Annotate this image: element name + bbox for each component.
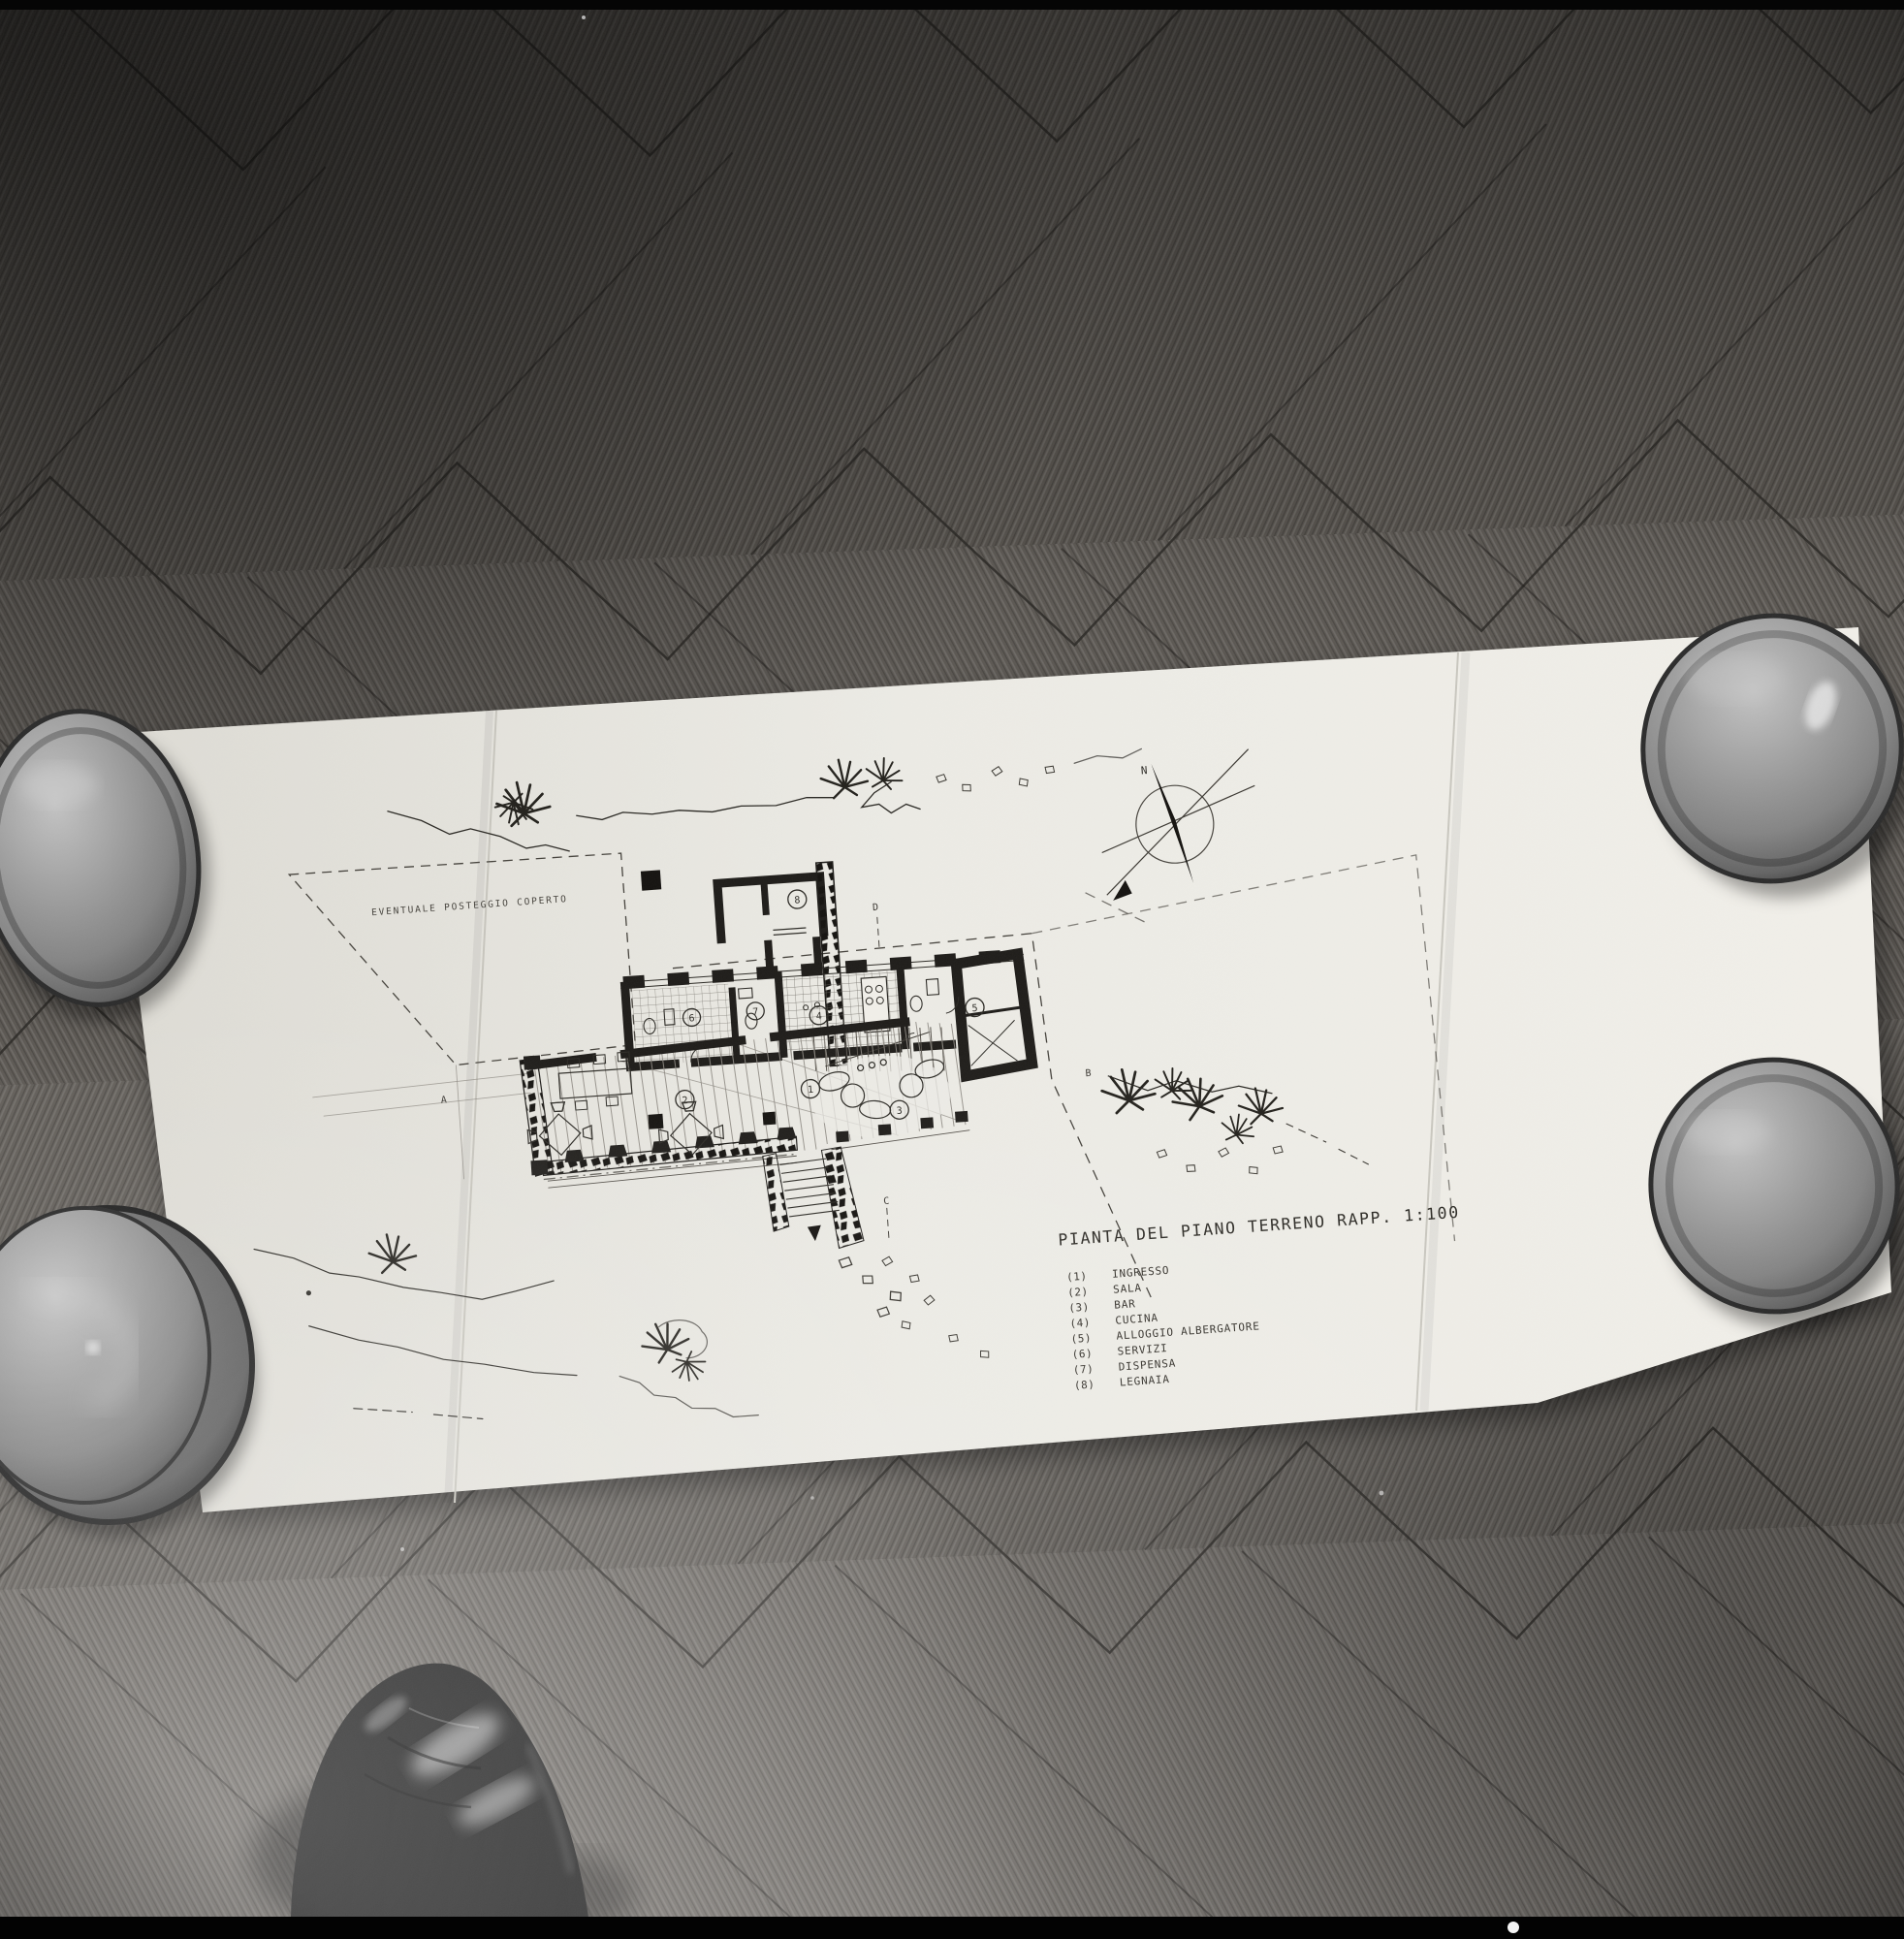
photo-scene: N EVENTUALE POSTEGGIO COPERTO [0, 0, 1904, 1939]
photo-of-floor-plan-on-parquet: N EVENTUALE POSTEGGIO COPERTO [0, 0, 1904, 1939]
film-border-bottom [0, 1917, 1904, 1939]
film-grain [0, 0, 1904, 1939]
film-notch [1507, 1922, 1519, 1933]
film-border-top [0, 0, 1904, 10]
